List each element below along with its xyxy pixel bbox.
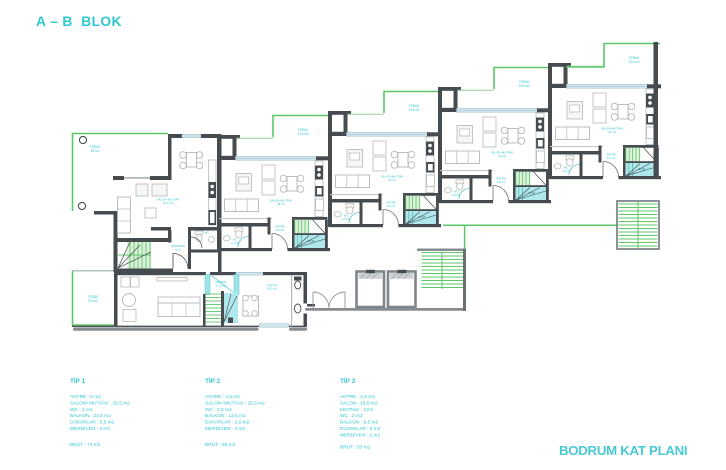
- svg-text:MERDİVEN : 4 m2: MERDİVEN : 4 m2: [205, 425, 245, 432]
- svg-text:BRÜT : 73 m2: BRÜT : 73 m2: [70, 441, 101, 448]
- svg-text:BODRUM KAT PLANI: BODRUM KAT PLANI: [559, 443, 687, 458]
- svg-text:BRÜT : 58 m2: BRÜT : 58 m2: [205, 441, 236, 448]
- svg-text:SALON+MUTFAK : 25,5 m2: SALON+MUTFAK : 25,5 m2: [70, 400, 130, 406]
- svg-text:BALKON : 12,5 m2: BALKON : 12,5 m2: [205, 413, 246, 419]
- svg-text:WC : 2 m2: WC : 2 m2: [70, 407, 93, 413]
- svg-text:TİP 2: TİP 2: [205, 376, 221, 385]
- svg-text:9,5 m2: 9,5 m2: [88, 299, 98, 303]
- svg-text:WC : 2 m2: WC : 2 m2: [340, 413, 363, 419]
- svg-text:MUTFAK : 13,5: MUTFAK : 13,5: [340, 407, 373, 413]
- svg-text:ANTRE : 2,5 m2: ANTRE : 2,5 m2: [340, 394, 375, 400]
- svg-text:BALKON : 22,5 m2: BALKON : 22,5 m2: [70, 413, 111, 419]
- svg-text:A – B BLOK: A – B BLOK: [36, 14, 122, 29]
- svg-text:59 m2: 59 m2: [91, 149, 100, 153]
- svg-text:BALKON : 9,5 m2: BALKON : 9,5 m2: [340, 420, 378, 426]
- svg-text:BRÜT : 53 m2: BRÜT : 53 m2: [340, 444, 371, 451]
- svg-text:DUVARLAR : 2,5 m2: DUVARLAR : 2,5 m2: [205, 420, 250, 426]
- svg-text:13,5 m2: 13,5 m2: [216, 284, 227, 288]
- svg-text:ANTRE : 4,5 m2: ANTRE : 4,5 m2: [205, 394, 240, 400]
- svg-text:TİP 1: TİP 1: [70, 376, 86, 385]
- svg-text:SALON : 18,5 m2: SALON : 18,5 m2: [340, 400, 378, 406]
- svg-text:18,5 m2: 18,5 m2: [267, 287, 278, 291]
- svg-text:MERDİVEN : 4 m2: MERDİVEN : 4 m2: [70, 425, 110, 432]
- svg-text:TİP 3: TİP 3: [340, 376, 356, 385]
- svg-text:DUVARLAR : 5 m2: DUVARLAR : 5 m2: [340, 426, 381, 432]
- svg-text:DUVARLAR : 5,5 m2: DUVARLAR : 5,5 m2: [70, 420, 115, 426]
- svg-text:WC : 2,5 m2: WC : 2,5 m2: [205, 407, 232, 413]
- svg-text:WC: WC: [205, 231, 209, 235]
- svg-text:SALON+MUTFAK : 25,5 m2: SALON+MUTFAK : 25,5 m2: [205, 400, 265, 406]
- svg-text:ANTRE : 5 m2: ANTRE : 5 m2: [70, 394, 101, 400]
- svg-text:25,5 m2: 25,5 m2: [163, 201, 174, 205]
- svg-text:4 m2: 4 m2: [175, 248, 181, 252]
- svg-text:MERDİVEN : 2 m2: MERDİVEN : 2 m2: [340, 431, 380, 438]
